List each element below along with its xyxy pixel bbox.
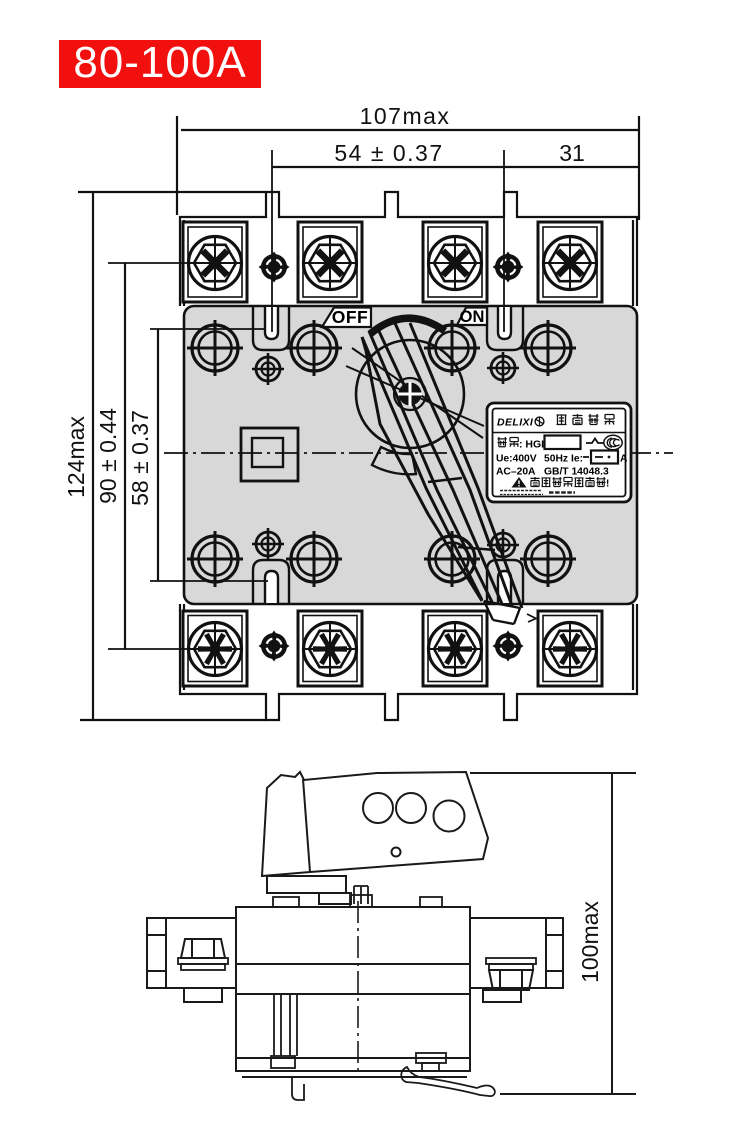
svg-text:80-100A: 80-100A [73,38,246,87]
svg-text:31: 31 [559,140,585,166]
svg-text:AC–20A: AC–20A [496,467,536,478]
svg-text:58 ± 0.37: 58 ± 0.37 [127,410,153,506]
svg-text:100max: 100max [577,901,603,983]
svg-text:Ue:400V: Ue:400V [496,454,537,465]
svg-text:50Hz: 50Hz [544,454,568,465]
svg-text:107max: 107max [360,103,451,129]
svg-text:DELIXI: DELIXI [497,417,534,429]
svg-text:90 ± 0.44: 90 ± 0.44 [95,408,121,504]
svg-text:124max: 124max [63,416,89,498]
svg-text:Ie:: Ie: [571,454,583,465]
svg-text:ON: ON [460,308,485,326]
svg-text:A: A [620,454,628,465]
svg-text:GB/T 14048.3: GB/T 14048.3 [544,467,609,478]
svg-text:!: ! [606,479,609,490]
svg-text:54 ± 0.37: 54 ± 0.37 [334,140,443,166]
svg-text:OFF: OFF [332,307,369,327]
